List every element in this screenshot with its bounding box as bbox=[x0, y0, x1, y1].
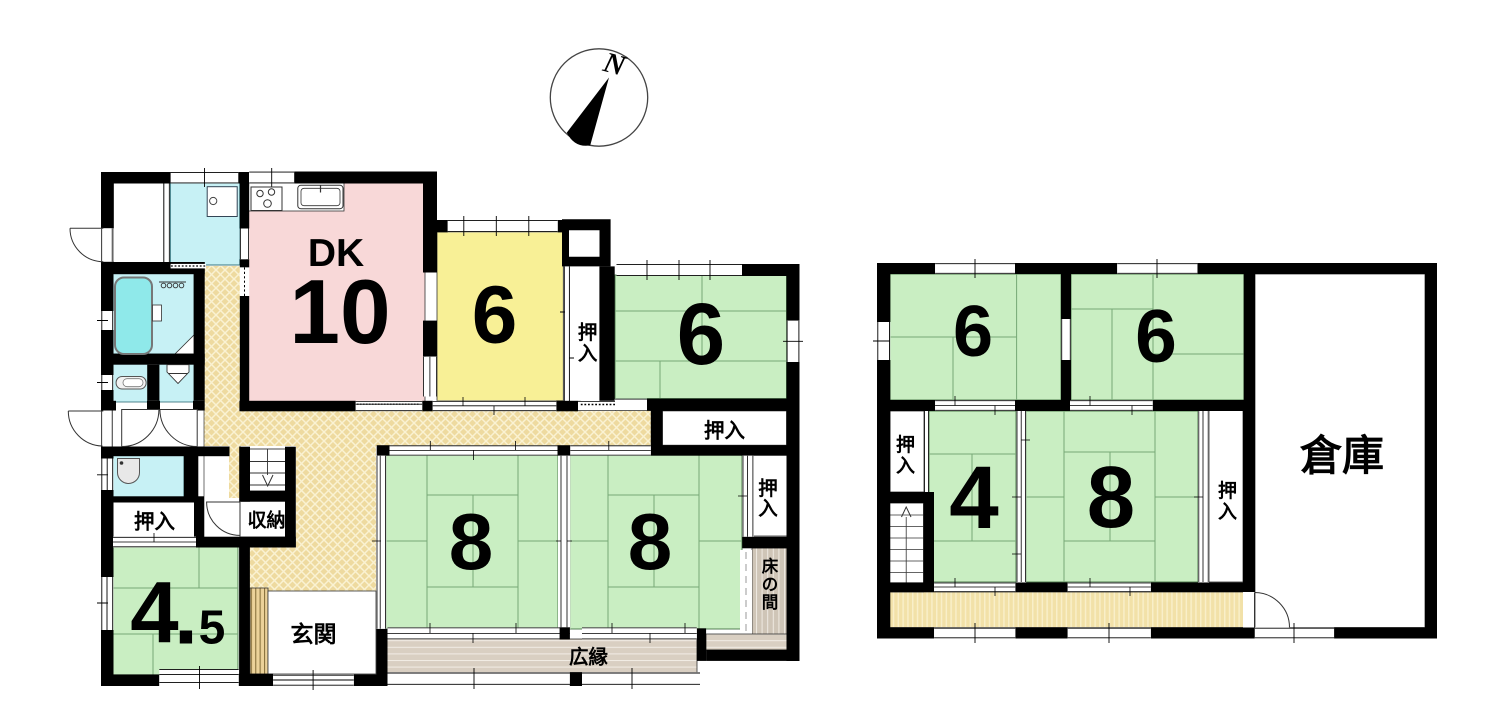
svg-text:6: 6 bbox=[677, 286, 725, 383]
svg-text:.: . bbox=[174, 566, 198, 663]
svg-text:倉庫: 倉庫 bbox=[1299, 432, 1384, 479]
svg-text:5: 5 bbox=[199, 602, 226, 655]
svg-text:4: 4 bbox=[949, 447, 999, 547]
svg-text:間: 間 bbox=[762, 593, 779, 612]
svg-text:8: 8 bbox=[449, 497, 494, 586]
svg-text:入: 入 bbox=[896, 455, 915, 477]
svg-text:6: 6 bbox=[472, 270, 518, 361]
svg-text:4: 4 bbox=[130, 564, 178, 661]
svg-text:広縁: 広縁 bbox=[569, 646, 609, 669]
svg-text:押: 押 bbox=[578, 321, 598, 344]
svg-text:8: 8 bbox=[628, 497, 673, 586]
svg-text:収納: 収納 bbox=[247, 509, 285, 532]
svg-text:の: の bbox=[762, 576, 779, 594]
svg-text:押入: 押入 bbox=[134, 510, 175, 534]
svg-text:入: 入 bbox=[578, 343, 598, 365]
svg-text:8: 8 bbox=[1087, 449, 1135, 546]
svg-text:10: 10 bbox=[289, 262, 390, 363]
svg-text:押: 押 bbox=[758, 477, 778, 500]
svg-text:押入: 押入 bbox=[704, 419, 745, 443]
svg-text:入: 入 bbox=[1218, 501, 1237, 523]
svg-text:押: 押 bbox=[896, 433, 915, 456]
svg-text:6: 6 bbox=[953, 292, 993, 372]
svg-text:入: 入 bbox=[758, 498, 778, 520]
svg-text:玄関: 玄関 bbox=[291, 621, 337, 647]
svg-text:床: 床 bbox=[762, 556, 779, 576]
svg-text:押: 押 bbox=[1218, 479, 1237, 502]
svg-text:6: 6 bbox=[1135, 294, 1177, 378]
